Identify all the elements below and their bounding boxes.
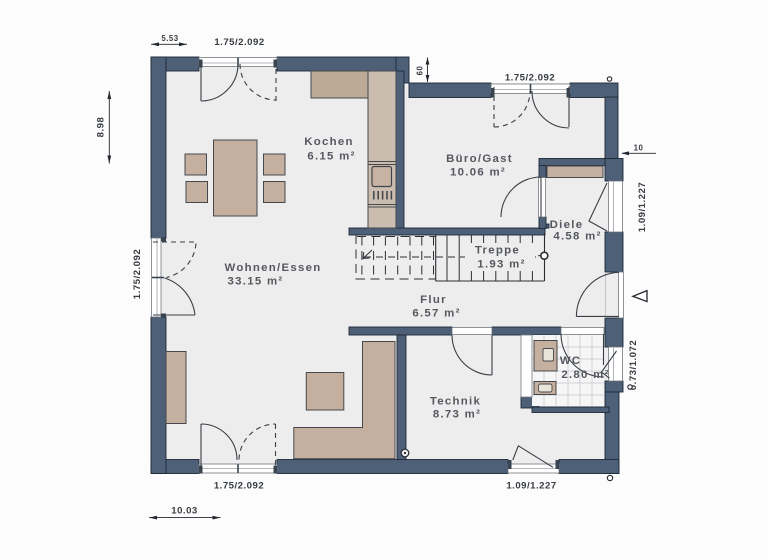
svg-text:8.98: 8.98: [96, 117, 107, 138]
svg-text:4.58 m²: 4.58 m²: [553, 231, 601, 243]
svg-text:5.53: 5.53: [161, 34, 178, 43]
svg-text:1.75/2.092: 1.75/2.092: [214, 37, 264, 48]
svg-text:33.15 m²: 33.15 m²: [228, 276, 284, 288]
svg-text:10.06 m²: 10.06 m²: [450, 167, 506, 179]
svg-text:60: 60: [416, 66, 425, 76]
svg-text:1.75/2.092: 1.75/2.092: [505, 73, 555, 84]
svg-text:6.15 m²: 6.15 m²: [307, 151, 355, 163]
svg-text:Büro/Gast: Büro/Gast: [446, 153, 513, 165]
svg-text:Kochen: Kochen: [304, 136, 354, 148]
svg-text:1.75/2.092: 1.75/2.092: [214, 481, 264, 492]
svg-text:1.09/1.227: 1.09/1.227: [637, 182, 648, 232]
svg-text:2.80 m²: 2.80 m²: [561, 369, 609, 381]
svg-text:Wohnen/Essen: Wohnen/Essen: [224, 262, 321, 274]
svg-text:Diele: Diele: [550, 219, 584, 231]
svg-text:10: 10: [634, 144, 644, 153]
svg-text:Treppe: Treppe: [475, 245, 520, 257]
svg-text:Flur: Flur: [420, 294, 447, 306]
svg-text:1.75/2.092: 1.75/2.092: [132, 249, 143, 299]
svg-text:1.93 m²: 1.93 m²: [477, 259, 525, 271]
svg-text:Technik: Technik: [430, 396, 481, 408]
svg-text:WC: WC: [560, 355, 582, 367]
svg-text:1.09/1.227: 1.09/1.227: [506, 481, 556, 492]
svg-text:6.57 m²: 6.57 m²: [412, 308, 460, 320]
svg-text:8.73 m²: 8.73 m²: [433, 409, 481, 421]
svg-text:10.03: 10.03: [171, 506, 198, 517]
svg-text:0.73/1.072: 0.73/1.072: [628, 340, 639, 390]
